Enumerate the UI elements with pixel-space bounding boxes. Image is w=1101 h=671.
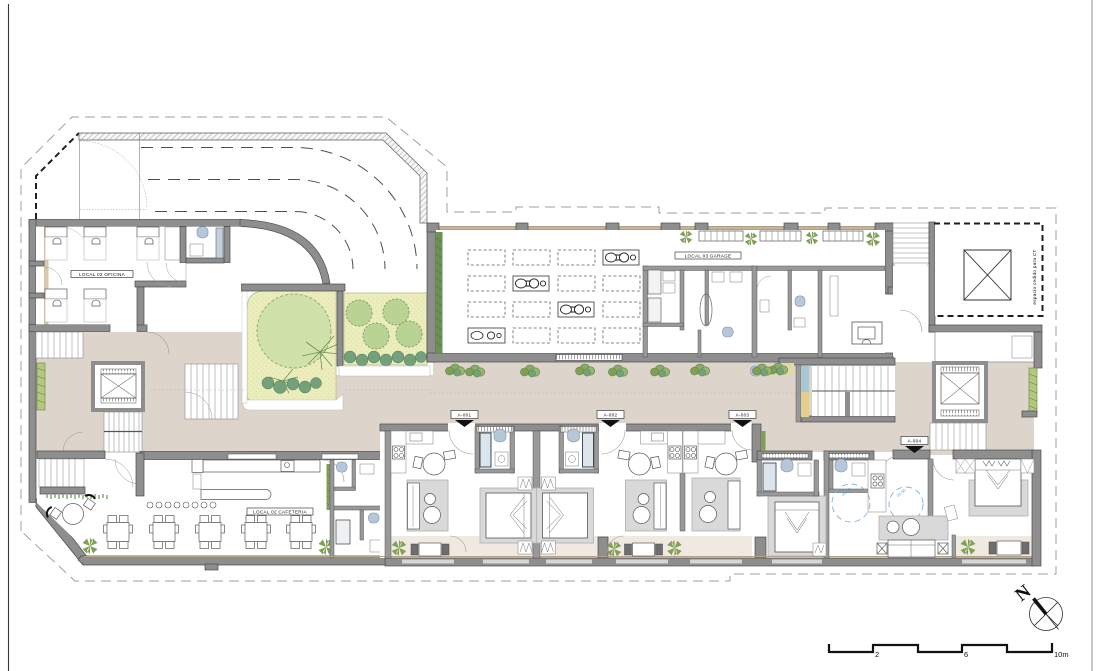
svg-text:A-003: A-003 [736,413,750,418]
svg-text:A-001: A-001 [458,413,472,418]
svg-text:espacio cedido para CT: espacio cedido para CT [1032,249,1037,304]
svg-text:A-002: A-002 [604,413,618,418]
svg-text:A-004: A-004 [908,439,922,444]
svg-text:LOCAL 02 CAFETERIA: LOCAL 02 CAFETERIA [253,510,307,515]
svg-text:6: 6 [964,650,968,659]
svg-text:LOCAL 03 OFICINA: LOCAL 03 OFICINA [79,272,126,277]
svg-text:10m: 10m [1054,650,1069,659]
svg-text:LOCAL 03 GARAGE: LOCAL 03 GARAGE [685,254,732,259]
svg-text:2: 2 [875,650,879,659]
